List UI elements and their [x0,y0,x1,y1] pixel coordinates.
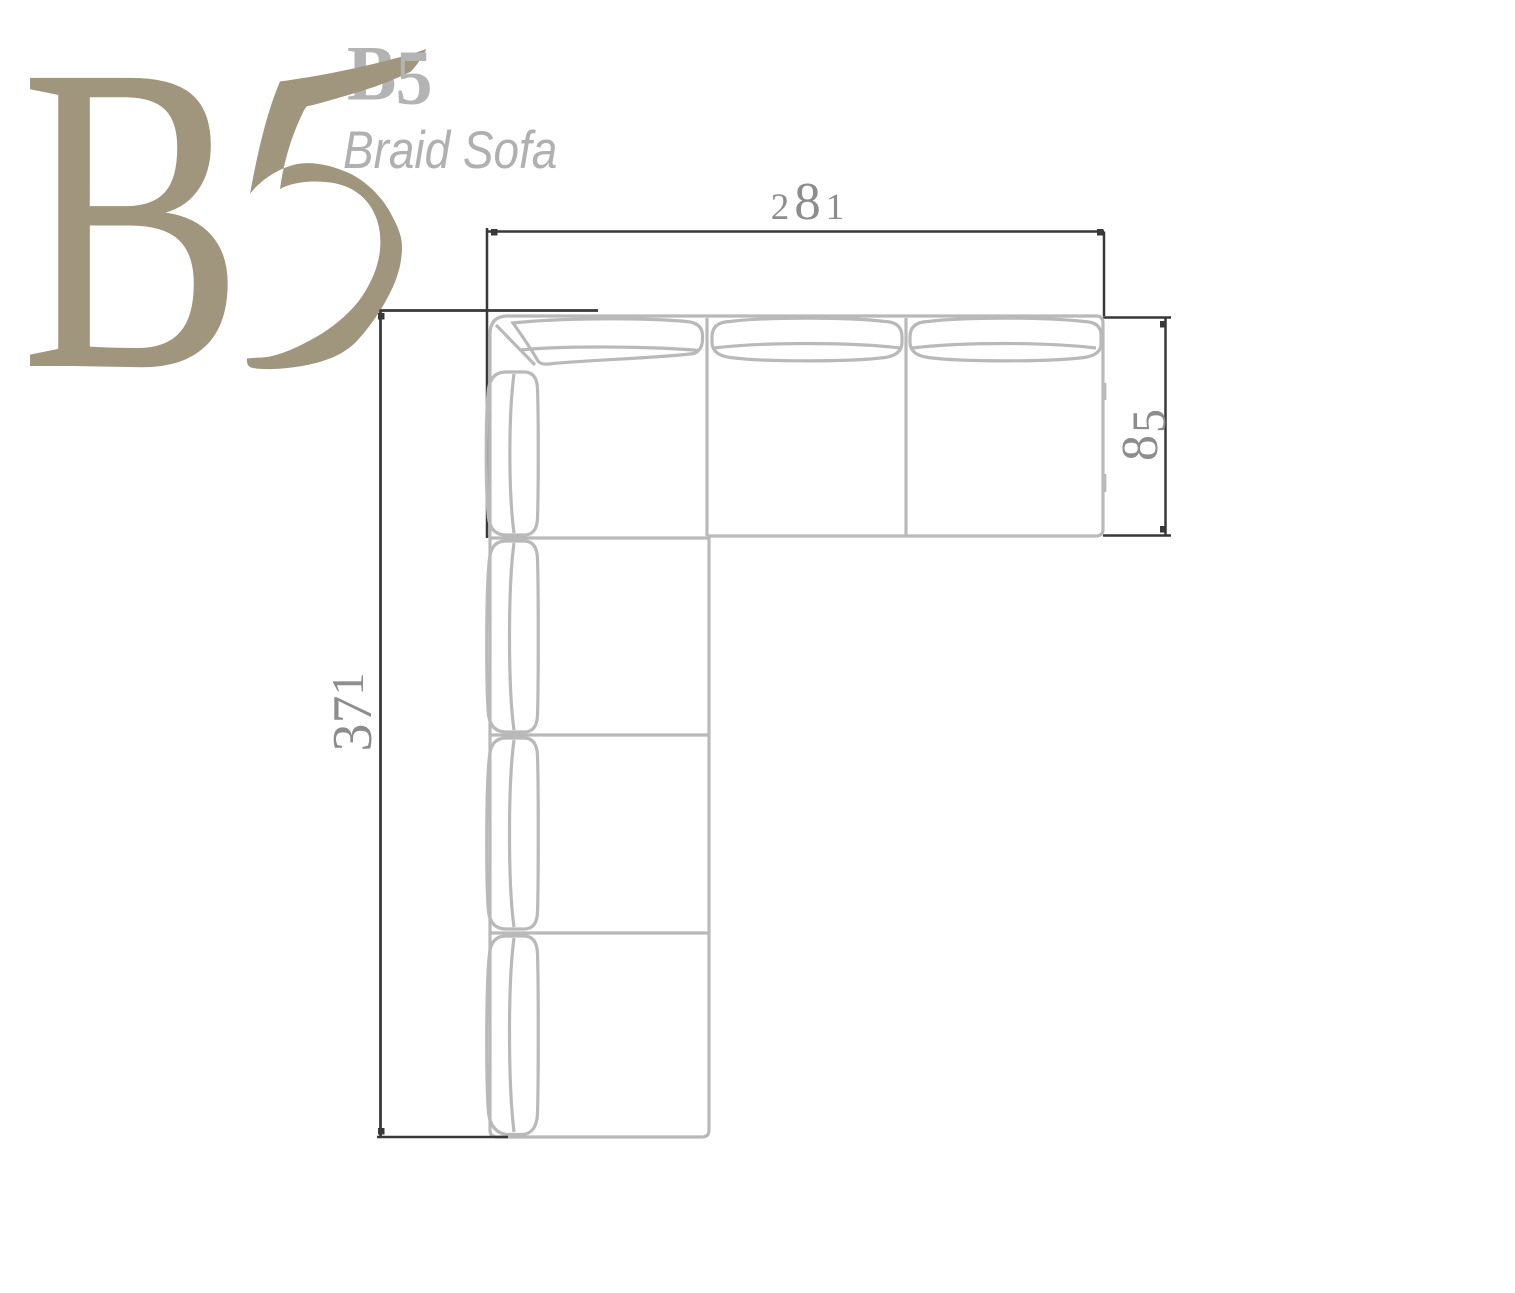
svg-text:281: 281 [771,173,850,231]
svg-text:371: 371 [322,673,384,752]
svg-text:85: 85 [1112,407,1176,461]
svg-text:5: 5 [396,35,433,121]
svg-text:B: B [20,0,244,462]
svg-text:Braid Sofa: Braid Sofa [343,120,557,180]
